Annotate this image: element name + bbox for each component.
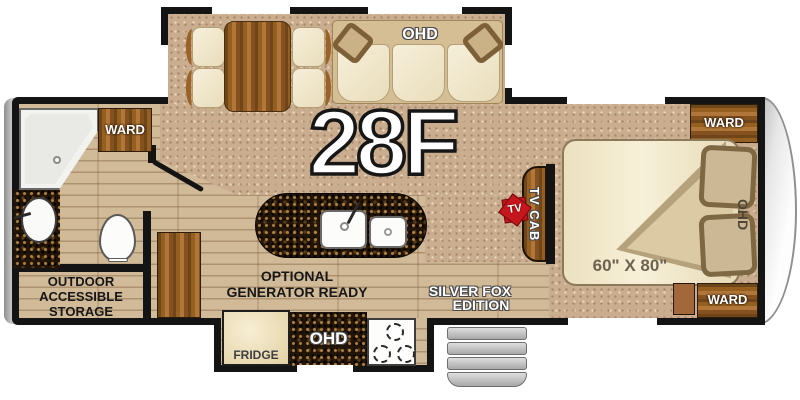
kitchen-ohd-label: OHD [310, 329, 348, 349]
generator-note: OPTIONAL GENERATOR READY [212, 268, 382, 300]
rv-floorplan: WARD OUTDOOR ACCESSIBLE STORAGE OHD TV C… [0, 0, 800, 400]
bedroom-wardrobe-top: WARD [690, 104, 758, 143]
entry-steps [447, 327, 527, 385]
chair-back-arc [186, 29, 198, 65]
edition-label: SILVER FOX EDITION [416, 284, 524, 312]
storage-line2: ACCESSIBLE [19, 289, 143, 304]
bath-wardrobe: WARD [98, 108, 152, 152]
bedroom-wardrobe-bottom-label: WARD [708, 293, 748, 307]
bed-size-label: 60" X 80" [570, 256, 690, 276]
bath-wardrobe-label: WARD [105, 123, 145, 137]
toilet-seat-hinge [108, 258, 128, 262]
dinette-table [224, 21, 291, 112]
step-tread [447, 342, 527, 355]
bedroom-wardrobe-top-label: WARD [704, 116, 744, 130]
bath-wall-vertical [143, 211, 151, 322]
window [161, 45, 168, 97]
storage-line1: OUTDOOR [19, 274, 143, 289]
window [568, 318, 657, 325]
window [297, 365, 353, 372]
fridge-label: FRIDGE [233, 348, 278, 364]
burner-icon [373, 345, 391, 363]
bedroom-wall [546, 164, 555, 264]
nightstand [673, 283, 695, 315]
burner-icon [386, 323, 404, 341]
window [368, 7, 462, 14]
vanity-sink [21, 197, 57, 243]
step-tread [447, 372, 527, 387]
window [505, 45, 512, 88]
chair-back-arc [319, 29, 331, 65]
window [212, 7, 290, 14]
island-faucet-base [340, 222, 349, 231]
model-label: 28F [262, 102, 502, 185]
generator-note-line2: GENERATOR READY [212, 284, 382, 300]
edition-line1: SILVER FOX [416, 284, 524, 298]
fridge: FRIDGE [222, 310, 290, 366]
step-tread [447, 327, 527, 340]
stove-cooktop [367, 318, 416, 366]
toilet [99, 214, 136, 262]
generator-note-line1: OPTIONAL [212, 268, 382, 284]
chair-back-arc [186, 70, 198, 106]
bedroom-wardrobe-bottom: WARD [697, 283, 758, 318]
shower-drain [53, 156, 61, 164]
pantry-cabinet [157, 232, 201, 318]
kitchen-counter: OHD [290, 312, 367, 366]
bedroom-ohd-label: OHD [735, 192, 751, 238]
storage-line3: STORAGE [19, 304, 143, 319]
sofa-ohd-label: OHD [395, 26, 445, 44]
tv-star-badge: TV [496, 191, 534, 229]
step-tread [447, 357, 527, 370]
storage-area: OUTDOOR ACCESSIBLE STORAGE [19, 274, 143, 319]
window [567, 97, 665, 104]
edition-line2: EDITION [416, 298, 524, 312]
burner-icon [397, 345, 415, 363]
sink-drain-dot [384, 228, 392, 236]
